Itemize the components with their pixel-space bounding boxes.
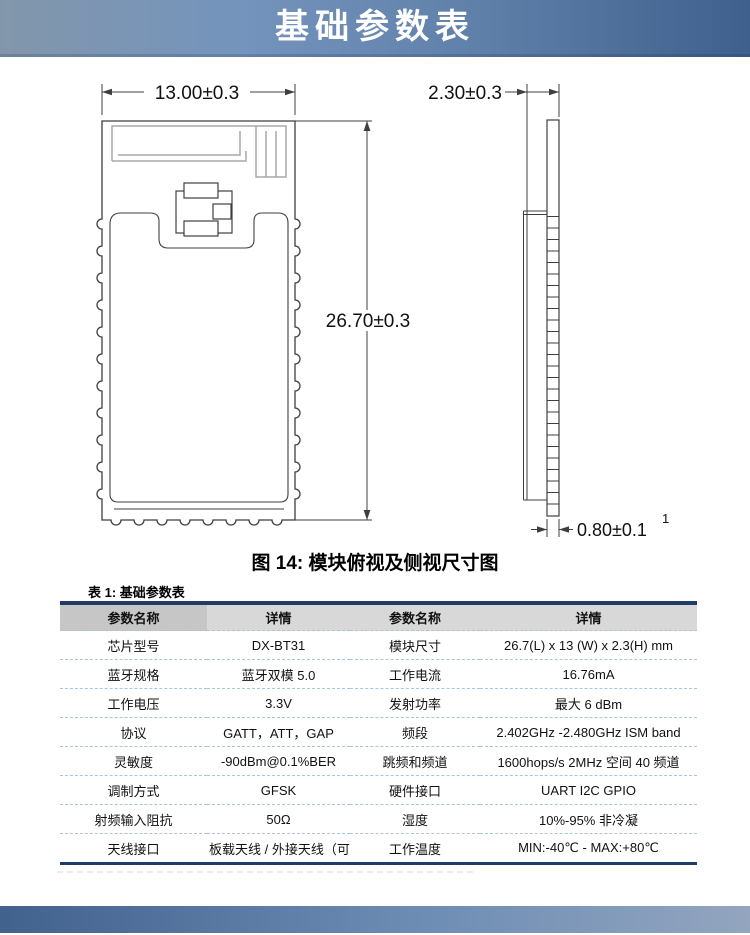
side-column: [547, 120, 559, 516]
param-value-cell: MIN:-40℃ - MAX:+80℃: [480, 834, 697, 864]
param-value-cell: 2.402GHz -2.480GHz ISM band: [480, 718, 697, 747]
param-name-cell: 跳频和频道: [350, 747, 480, 776]
table-row: 调制方式 GFSK 硬件接口 UART I2C GPIO: [60, 776, 697, 805]
faint-divider-line: [57, 871, 473, 873]
param-value-cell: 板载天线 / 外接天线（可选）: [207, 834, 350, 864]
param-name-cell: 湿度: [350, 805, 480, 834]
param-name-cell: 天线接口: [60, 834, 207, 864]
table-row: 协议 GATT，ATT，GAP 频段 2.402GHz -2.480GHz IS…: [60, 718, 697, 747]
dim-length-label: 26.70±0.3: [326, 311, 410, 332]
table-row: 蓝牙规格 蓝牙双模 5.0 工作电流 16.76mA: [60, 660, 697, 689]
param-value-cell: DX-BT31: [207, 631, 350, 660]
parameters-table: 参数名称 详情 参数名称 详情 芯片型号 DX-BT31 模块尺寸 26.7(L…: [60, 601, 697, 865]
table-row: 工作电压 3.3V 发射功率 最大 6 dBm: [60, 689, 697, 718]
param-name-cell: 工作温度: [350, 834, 480, 864]
module-outline: [97, 121, 300, 525]
table-row: 射频输入阻抗 50Ω 湿度 10%-95% 非冷凝: [60, 805, 697, 834]
dim-pad-label: 0.80±0.1: [577, 520, 647, 540]
side-view-drawing: [524, 84, 560, 516]
param-value-cell: -90dBm@0.1%BER: [207, 747, 350, 776]
param-name-cell: 发射功率: [350, 689, 480, 718]
header-cell-param-2: 参数名称: [350, 603, 480, 631]
param-name-cell: 芯片型号: [60, 631, 207, 660]
datasheet-page: 基础参数表: [0, 0, 750, 935]
param-value-cell: 26.7(L) x 13 (W) x 2.3(H) mm: [480, 631, 697, 660]
top-view-drawing: [97, 121, 300, 525]
param-value-cell: 3.3V: [207, 689, 350, 718]
param-value-cell: 16.76mA: [480, 660, 697, 689]
param-value-cell: UART I2C GPIO: [480, 776, 697, 805]
param-name-cell: 灵敏度: [60, 747, 207, 776]
param-value-cell: 50Ω: [207, 805, 350, 834]
param-value-cell: 最大 6 dBm: [480, 689, 697, 718]
dim-width-label: 13.00±0.3: [155, 83, 239, 104]
param-value-cell: GFSK: [207, 776, 350, 805]
table-row: 灵敏度 -90dBm@0.1%BER 跳频和频道 1600hops/s 2MHz…: [60, 747, 697, 776]
parameters-table-wrap: 参数名称 详情 参数名称 详情 芯片型号 DX-BT31 模块尺寸 26.7(L…: [60, 601, 697, 865]
table-row: 芯片型号 DX-BT31 模块尺寸 26.7(L) x 13 (W) x 2.3…: [60, 631, 697, 660]
page-footer-bar: [0, 906, 750, 933]
param-name-cell: 模块尺寸: [350, 631, 480, 660]
header-cell-param-1: 参数名称: [60, 603, 207, 631]
dim-thickness-label: 2.30±0.3: [428, 83, 502, 104]
table-title: 表 1: 基础参数表: [88, 582, 185, 601]
param-name-cell: 协议: [60, 718, 207, 747]
dim-pad-superscript: 1: [662, 511, 669, 526]
param-value-cell: 1600hops/s 2MHz 空间 40 频道: [480, 747, 697, 776]
header-cell-detail-2: 详情: [480, 603, 697, 631]
param-name-cell: 硬件接口: [350, 776, 480, 805]
param-name-cell: 工作电流: [350, 660, 480, 689]
param-name-cell: 射频输入阻抗: [60, 805, 207, 834]
param-value-cell: 10%-95% 非冷凝: [480, 805, 697, 834]
table-header-row: 参数名称 详情 参数名称 详情: [60, 603, 697, 631]
param-value-cell: GATT，ATT，GAP: [207, 718, 350, 747]
param-name-cell: 蓝牙规格: [60, 660, 207, 689]
param-name-cell: 频段: [350, 718, 480, 747]
module-dimension-drawing: 13.00±0.3 26.70±0.3 2.30±0.3 0.80±0.1 1: [0, 0, 750, 550]
header-cell-detail-1: 详情: [207, 603, 350, 631]
param-name-cell: 工作电压: [60, 689, 207, 718]
table-row: 天线接口 板载天线 / 外接天线（可选） 工作温度 MIN:-40℃ - MAX…: [60, 834, 697, 864]
param-value-cell: 蓝牙双模 5.0: [207, 660, 350, 689]
figure-caption: 图 14: 模块俯视及侧视尺寸图: [0, 548, 750, 575]
param-name-cell: 调制方式: [60, 776, 207, 805]
